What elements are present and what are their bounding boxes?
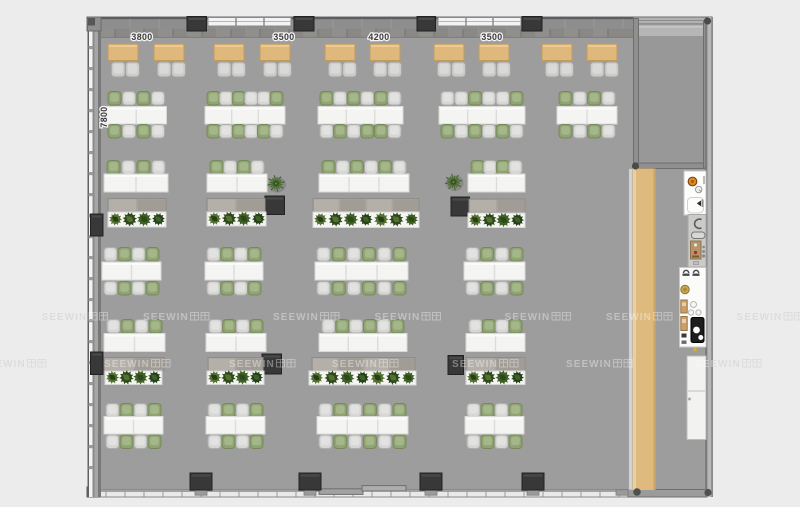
svg-text:SEEWIN: SEEWIN [0, 359, 26, 370]
svg-text:3800: 3800 [131, 32, 152, 42]
svg-text:SEEWIN: SEEWIN [505, 312, 551, 323]
svg-text:3500: 3500 [273, 32, 294, 42]
svg-text:SEEWIN: SEEWIN [229, 359, 275, 370]
svg-text:SEEWIN: SEEWIN [332, 359, 378, 370]
svg-text:3500: 3500 [481, 32, 502, 42]
svg-text:7800: 7800 [99, 106, 109, 127]
svg-text:4200: 4200 [368, 32, 389, 42]
svg-text:SEEWIN: SEEWIN [737, 312, 783, 323]
svg-text:SEEWIN: SEEWIN [42, 312, 88, 323]
svg-text:SEEWIN: SEEWIN [143, 312, 189, 323]
svg-text:SEEWIN: SEEWIN [606, 312, 652, 323]
svg-text:SEEWIN: SEEWIN [566, 359, 612, 370]
svg-text:SEEWIN: SEEWIN [104, 359, 150, 370]
svg-text:SEEWIN: SEEWIN [273, 312, 319, 323]
svg-text:SEEWIN: SEEWIN [375, 312, 421, 323]
svg-text:SEEWIN: SEEWIN [452, 359, 498, 370]
